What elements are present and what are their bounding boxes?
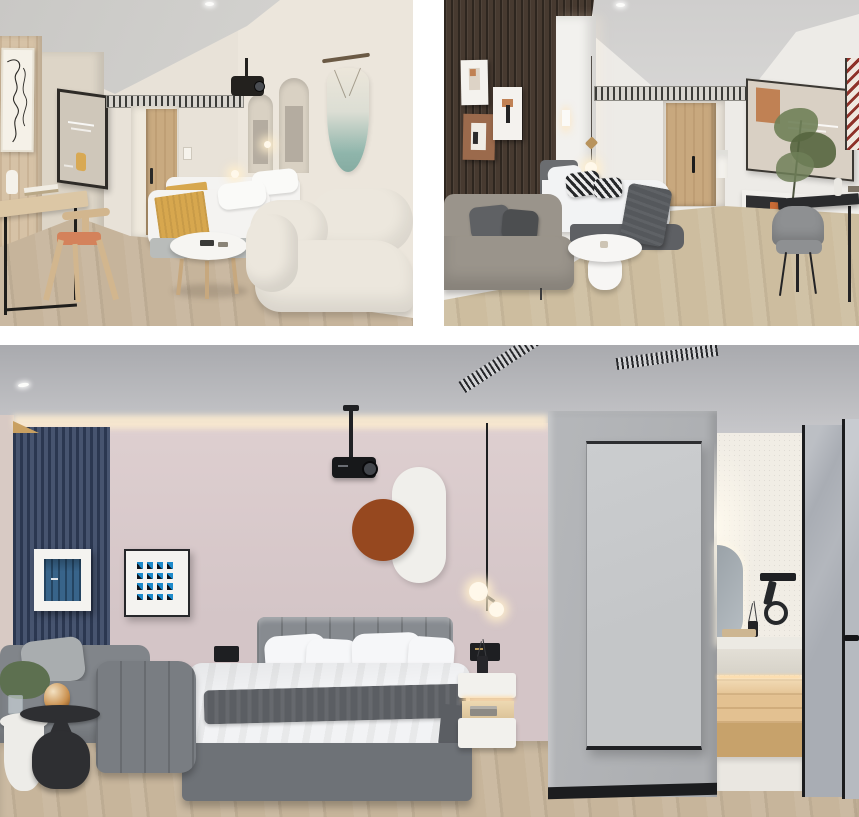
screen-text-line [64, 164, 73, 167]
grid-tile [137, 583, 143, 590]
frame-2-accent [473, 132, 478, 144]
table-leg [205, 261, 209, 299]
chair-cushion [57, 232, 101, 245]
grid-tile [167, 562, 173, 569]
table-book [200, 240, 214, 246]
screen-bottle-graphic [76, 152, 86, 171]
projector-label-mark [338, 465, 348, 467]
sofa-leg [540, 288, 542, 300]
bathroom-glimpse [716, 150, 728, 178]
blue-door-artwork-frame [34, 549, 91, 611]
grid-tile [147, 594, 153, 601]
diffuser-bottle [477, 656, 488, 674]
nightstand-open-shelf [462, 701, 514, 718]
grid-tile [157, 594, 163, 601]
screen-text-line [68, 121, 94, 127]
hairdryer-mount [760, 573, 796, 581]
red-print-artwork [845, 58, 859, 150]
terracotta-circle-decor [352, 499, 414, 561]
photo-pink-grey-bedroom [0, 345, 859, 817]
projector-pole [349, 409, 353, 459]
wall-hairdryer-ring [764, 601, 788, 625]
grey-sofa-seat [444, 236, 574, 290]
grid-tile [137, 594, 143, 601]
grid-tile [157, 562, 163, 569]
gallery-frame-1 [461, 60, 489, 105]
line-art-frame [1, 48, 35, 152]
desk-vase [6, 170, 18, 194]
line-art-drawing [3, 50, 33, 150]
lit-wood-shelves [717, 679, 802, 723]
wall-switch-left [214, 646, 239, 662]
projector-lens-c [362, 461, 378, 477]
plant-foliage [776, 152, 814, 182]
ac-vent-b [594, 86, 758, 101]
ceiling-spotlight-a [205, 2, 214, 6]
vanity-tray [722, 629, 756, 637]
grid-tile [167, 583, 173, 590]
grid-tile [137, 573, 143, 580]
frame-3-art [506, 105, 510, 123]
grid-tile [157, 573, 163, 580]
shelf-books [470, 709, 497, 716]
projector-lens-a [254, 81, 265, 92]
grid-tile [137, 562, 143, 569]
media-screen-a [57, 88, 108, 189]
arched-niche-1 [248, 94, 273, 173]
nightstand-lower-box [458, 718, 516, 748]
screen-text-line [71, 127, 91, 132]
oval-pedestal-table [568, 234, 642, 262]
lower-wood-cabinet [717, 723, 802, 757]
desk-leg-b [848, 206, 851, 302]
pendant-globe-1 [469, 582, 488, 601]
sofa-chaise-arm [96, 661, 196, 773]
grid-tile [147, 573, 153, 580]
artwork-door-handle [51, 578, 58, 580]
grid-tile [157, 583, 163, 590]
door-handle-b [692, 156, 695, 173]
plant-foliage-c [0, 661, 50, 699]
photo-collage [0, 0, 859, 817]
blue-grid-artwork [137, 562, 173, 600]
pendant-globe-2 [489, 602, 504, 617]
door-handle-a [150, 168, 153, 184]
pendant-rod-c [486, 423, 488, 611]
table-cup [600, 241, 608, 248]
blue-door-artwork [44, 559, 81, 601]
entry-door-b [666, 103, 716, 206]
desk-vase-b [834, 178, 842, 196]
grid-tile [167, 594, 173, 601]
grey-chair-seat [776, 240, 822, 254]
ceiling-projector-c [332, 457, 376, 478]
blue-grid-artwork-frame [124, 549, 190, 617]
ceiling-projector-a [231, 76, 264, 96]
photo-dark-slat-room [444, 0, 859, 326]
bathroom-floor [717, 757, 802, 791]
striped-pillow-2 [593, 177, 622, 199]
grid-tile [167, 573, 173, 580]
macrame-cord [349, 68, 361, 96]
framed-panel [586, 441, 702, 750]
gallery-frame-2 [463, 114, 496, 161]
nightstand-top-box [458, 673, 516, 698]
coffee-table-a [170, 232, 247, 260]
glass-door-2 [842, 419, 859, 799]
arched-niche-2 [279, 78, 309, 173]
desk-books-b [848, 186, 859, 192]
wall-sconce-a [264, 141, 271, 148]
frame-1-accent [470, 69, 476, 76]
ceiling-spotlight-b [616, 3, 625, 7]
wall-sconce-b [562, 110, 570, 126]
vanity-counter-top [717, 637, 802, 649]
gallery-frame-3 [493, 87, 522, 140]
bedside-lamp-glow [231, 170, 239, 178]
projector-pole-a [245, 58, 248, 78]
glass-door-1 [802, 425, 845, 797]
desk-leg-a [4, 217, 7, 315]
bed-throw-c [204, 684, 467, 725]
vanity-counter-front [717, 649, 802, 675]
light-switch-a [183, 147, 192, 160]
black-table-base [32, 731, 90, 789]
glass-door-handle [844, 635, 859, 641]
niche-artwork-2 [285, 106, 303, 162]
table-tray [218, 242, 228, 247]
macrame-cord [334, 70, 346, 98]
grid-tile [147, 583, 153, 590]
photo-beige-twin-room [0, 0, 413, 326]
bed-base-c [182, 743, 472, 801]
sofa-arm-front [246, 214, 298, 292]
grid-tile [147, 562, 153, 569]
